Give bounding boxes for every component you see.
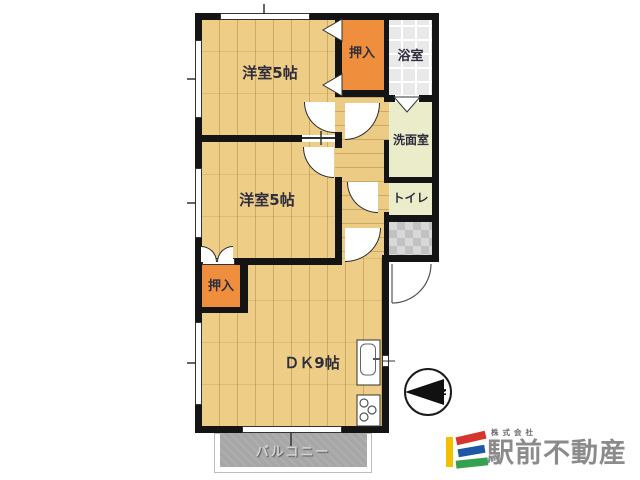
- room2-label: 洋室5帖: [202, 193, 332, 208]
- closet2-label: 押入: [202, 280, 240, 293]
- dk-label: ＤＫ9帖: [242, 356, 382, 371]
- stove-burner-2: [368, 406, 376, 414]
- toilet-label: トイレ: [389, 192, 432, 204]
- logo-bar-yellow: [446, 437, 453, 467]
- company-name: 駅前不動産: [487, 440, 627, 467]
- company-prefix: 株式会社: [491, 427, 537, 438]
- bath-folding-door: [394, 97, 420, 112]
- stove-burner-1: [360, 399, 368, 407]
- bathroom-label: 浴室: [389, 50, 432, 63]
- closet1-door-leaf1: [323, 19, 342, 41]
- washroom-label: 洗面室: [387, 134, 435, 146]
- room1-label: 洋室5帖: [205, 66, 335, 81]
- floorplan-canvas: N 洋室5帖 洋室5帖 押入 浴室 洗面室 トイレ 押入 ＤＫ9帖 バルコニー …: [0, 0, 640, 480]
- closet1-label: 押入: [340, 47, 384, 60]
- entrance-door-arc: [392, 264, 431, 303]
- compass-north-label: N: [437, 388, 447, 396]
- stove-burner-3: [360, 413, 368, 421]
- balcony-label: バルコニー: [223, 446, 363, 459]
